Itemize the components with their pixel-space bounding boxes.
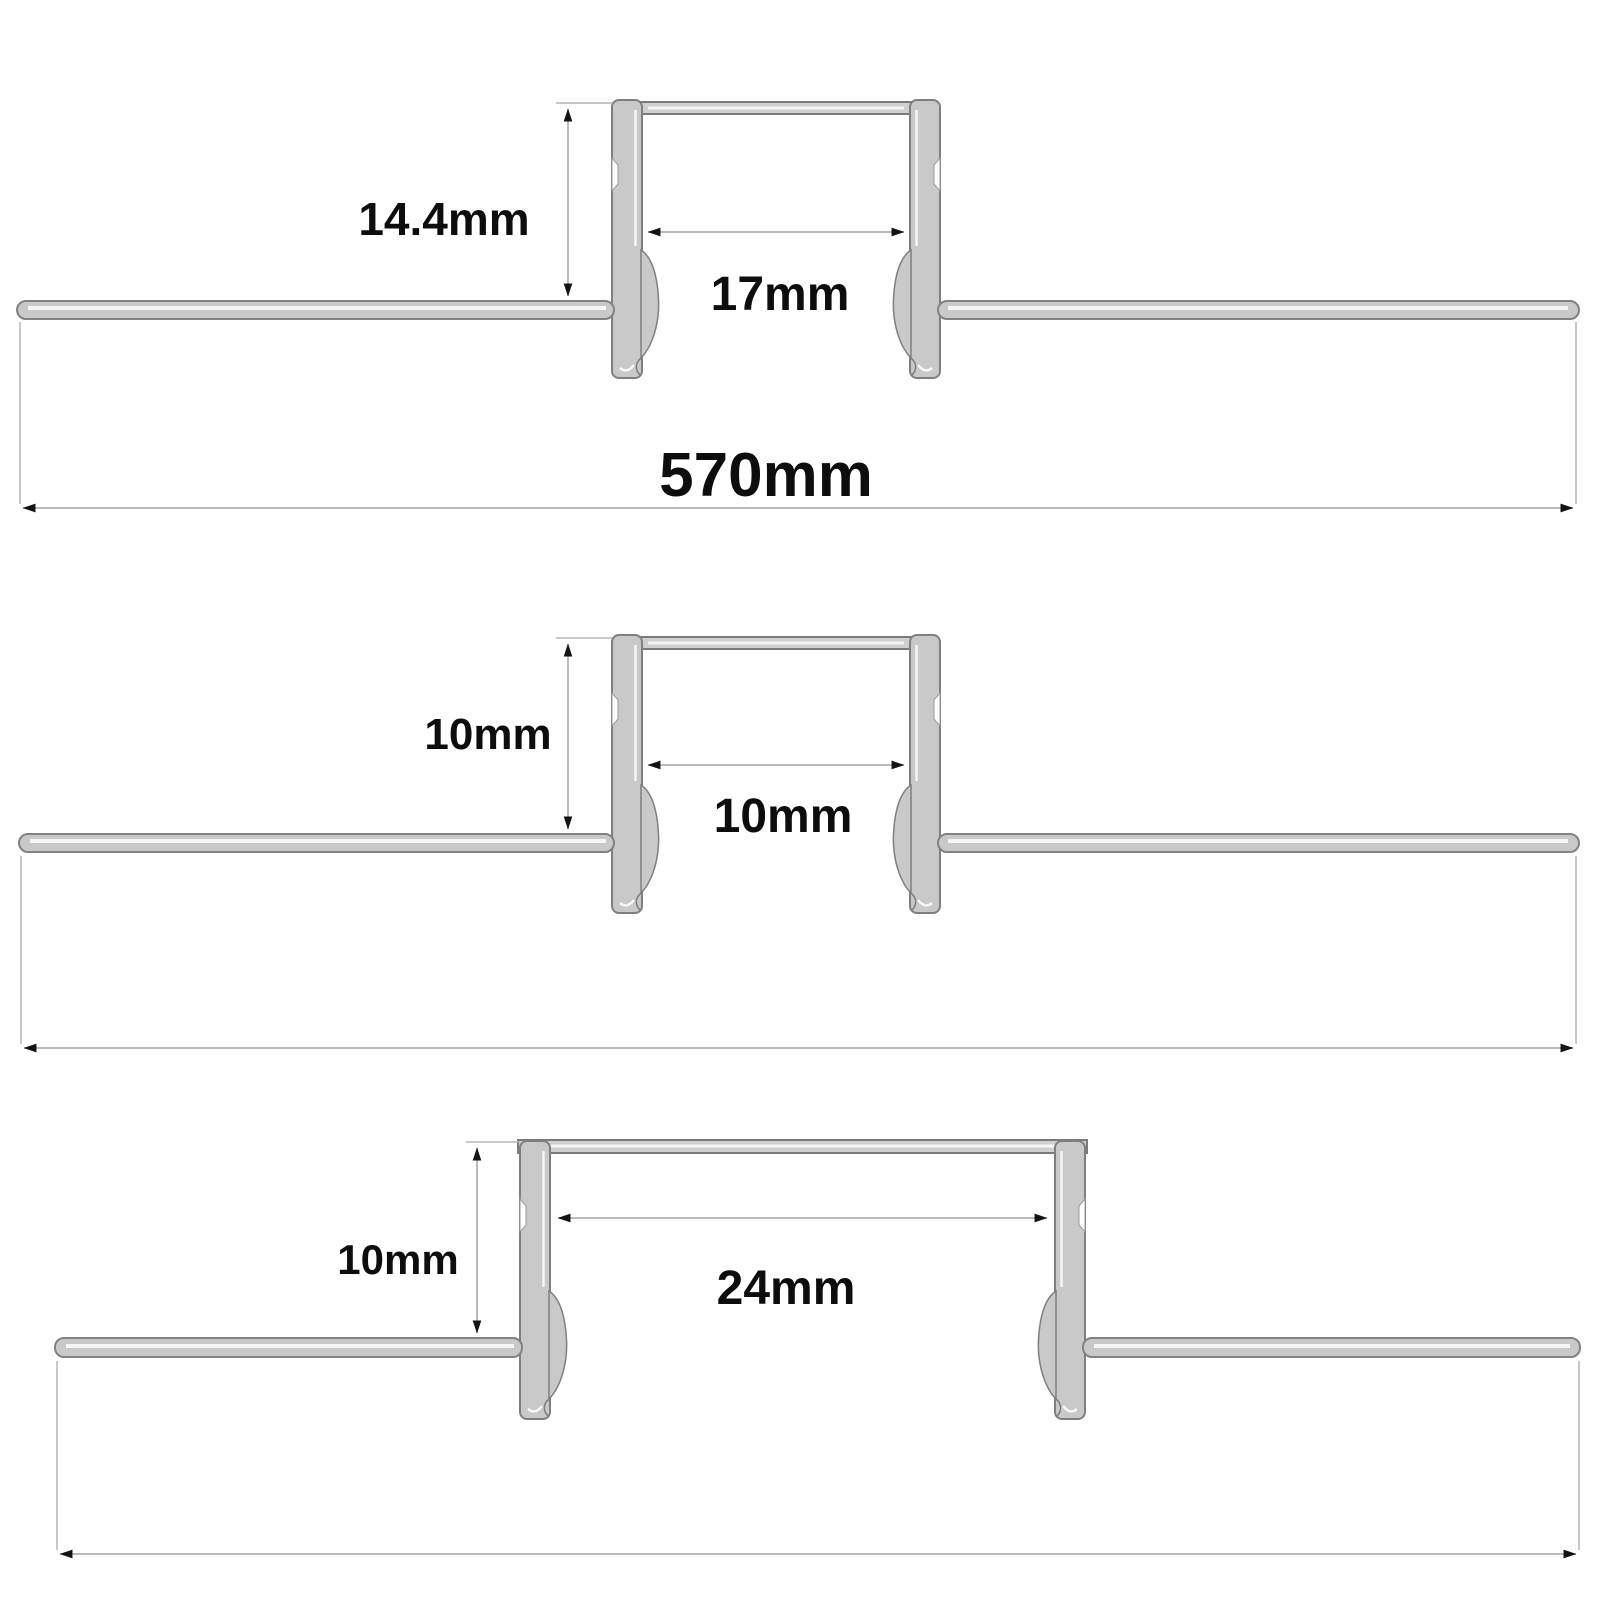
dim-label-overall-top: 570mm <box>659 441 873 510</box>
channel-wall-left <box>612 635 659 913</box>
flange-left <box>19 834 614 852</box>
channel-wall-right <box>893 635 940 913</box>
flange-left <box>17 301 614 319</box>
dim-label-width-middle: 10mm <box>714 790 853 843</box>
channel-wall-right <box>893 100 940 378</box>
dim-label-height-middle: 10mm <box>424 710 551 759</box>
technical-drawing-canvas: 14.4mm 17mm 570mm 10mm 10mm <box>0 0 1600 1600</box>
channel-wall-right <box>1038 1141 1085 1419</box>
dim-label-height-bottom: 10mm <box>337 1236 458 1283</box>
flange-right <box>938 834 1579 852</box>
diagram-middle-profile: 10mm 10mm <box>19 635 1579 1048</box>
channel-wall-left <box>520 1141 567 1419</box>
dim-label-width-bottom: 24mm <box>717 1262 856 1315</box>
profile-drawing-svg: 14.4mm 17mm 570mm 10mm 10mm <box>0 0 1600 1600</box>
diagram-top-profile: 14.4mm 17mm 570mm <box>17 100 1579 510</box>
flange-right <box>1083 1338 1580 1357</box>
flange-right <box>938 301 1579 319</box>
dim-label-width-top: 17mm <box>711 268 850 321</box>
flange-left <box>55 1338 522 1357</box>
dim-label-height-top: 14.4mm <box>358 193 529 245</box>
diagram-bottom-profile: 10mm 24mm <box>55 1140 1580 1554</box>
channel-wall-left <box>612 100 659 378</box>
